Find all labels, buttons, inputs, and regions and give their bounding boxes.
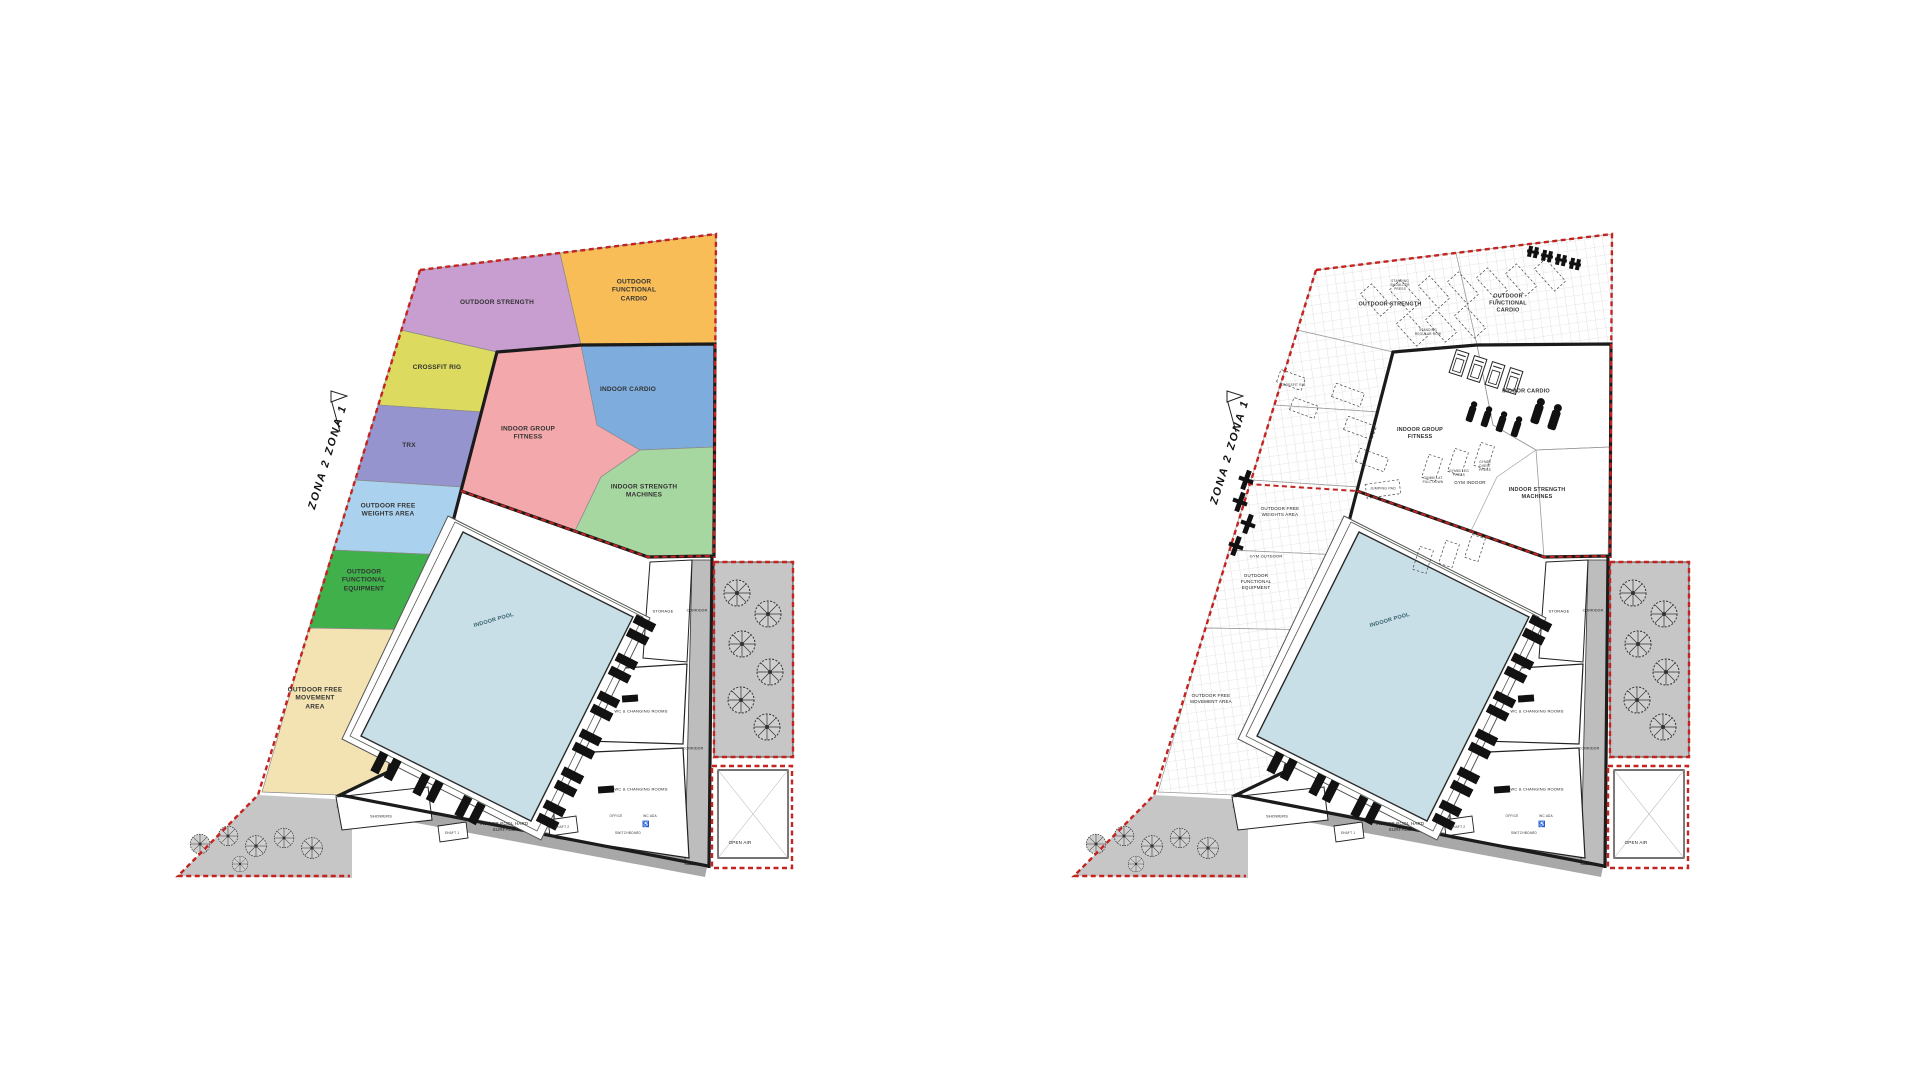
label-gym-outdoor: GYM OUTDOOR bbox=[1244, 553, 1288, 558]
room-label-corridor-lower-right: CORRIDOR bbox=[1574, 747, 1604, 752]
room-label-office-right: OFFICE bbox=[1500, 814, 1524, 818]
room-label-open-air: OPEN AIR bbox=[720, 840, 760, 846]
zone-label-indoor-cardio-right: INDOOR CARDIO bbox=[1491, 388, 1561, 395]
zoning-plan-left bbox=[178, 234, 793, 878]
zone-label-indoor-group-fitness: INDOOR GROUP FITNESS bbox=[497, 426, 559, 443]
equipment-tag: STANDING REGULAR ROW bbox=[1414, 328, 1442, 336]
room-label-storage: STORAGE bbox=[643, 608, 683, 613]
room-label-pool-hard-surface-right: INDOOR POOL HARD SURFACE bbox=[1370, 821, 1430, 833]
room-label-wc-changing-2-right: WC & CHANGING ROOMS bbox=[1508, 786, 1566, 791]
indoor-rooms-white bbox=[1357, 344, 1612, 557]
zone-label-indoor-group-fitness-right: INDOOR GROUP FITNESS bbox=[1389, 427, 1451, 441]
label-jumping-pad: JUMPING PAD bbox=[1365, 487, 1401, 492]
zone-label-trx: TRX bbox=[389, 442, 429, 450]
equipment-tag: GYM80 LEG PRESS bbox=[1448, 469, 1470, 477]
room-label-shaft-1: SHAFT 1 bbox=[440, 831, 464, 835]
zone-label-outdoor-functional-equipment: OUTDOOR FUNCTIONAL EQUIPMENT bbox=[335, 568, 393, 593]
room-label-corridor-lower: CORRIDOR bbox=[678, 747, 708, 752]
room-label-wc-ada-right: WC ADA bbox=[1534, 814, 1558, 818]
zone-label-indoor-strength-machines: INDOOR STRENGTH MACHINES bbox=[608, 484, 680, 501]
room-label-wc-changing-2: WC & CHANGING ROOMS bbox=[612, 786, 670, 791]
room-label-shaft-1-right: SHAFT 1 bbox=[1336, 831, 1360, 835]
zone-label-outdoor-strength: OUTDOOR STRENGTH bbox=[457, 299, 537, 307]
room-label-corridor-upper-right: CORRIDOR bbox=[1578, 609, 1608, 614]
label-gym-indoor: GYM INDOOR bbox=[1448, 480, 1492, 486]
zone-label-outdoor-functional-cardio: OUTDOOR FUNCTIONAL CARDIO bbox=[607, 278, 662, 303]
room-label-pool-hard-surface: INDOOR POOL HARD SURFACE bbox=[474, 821, 534, 833]
zone-label-crossfit-rig: CROSSFIT RIG bbox=[407, 364, 467, 372]
room-label-office: OFFICE bbox=[604, 814, 628, 818]
equipment-tag: GYM80 CHEST PRESS bbox=[1474, 460, 1496, 472]
label-crossfit-rig-tag: CROSSFIT RIG bbox=[1278, 383, 1308, 387]
zone-label-outdoor-functional-cardio-right: OUTDOOR FUNCTIONAL CARDIO bbox=[1483, 293, 1533, 314]
zone-label-indoor-strength-machines-right: INDOOR STRENGTH MACHINES bbox=[1501, 487, 1573, 501]
zone-label-outdoor-free-movement: OUTDOOR FREE MOVEMENT AREA bbox=[286, 686, 344, 711]
site-plan-canvas: OUTDOOR STRENGTH OUTDOOR FUNCTIONAL CARD… bbox=[0, 0, 1920, 1080]
plans-drawing bbox=[0, 0, 1920, 1080]
wheelchair-icon: ♿ bbox=[642, 822, 650, 830]
zone-label-outdoor-free-movement-right: OUTDOOR FREE MOVEMENT AREA bbox=[1184, 693, 1239, 705]
room-label-wc-changing-1-right: WC & CHANGING ROOMS bbox=[1508, 708, 1566, 713]
room-label-wc-ada: WC ADA bbox=[638, 814, 662, 818]
room-label-switchboard-right: SWITCHBOARD bbox=[1506, 831, 1542, 835]
wheelchair-icon-right: ♿ bbox=[1538, 822, 1546, 830]
room-label-showers-right: SHOWERS bbox=[1260, 813, 1294, 818]
room-label-corridor-upper: CORRIDOR bbox=[682, 609, 712, 614]
zone-label-outdoor-free-weights: OUTDOOR FREE WEIGHTS AREA bbox=[359, 503, 417, 520]
room-label-switchboard: SWITCHBOARD bbox=[610, 831, 646, 835]
room-label-showers: SHOWERS bbox=[364, 813, 398, 818]
zone-label-outdoor-strength-right: OUTDOOR STRENGTH bbox=[1350, 301, 1430, 308]
equipment-tag: GYM80 LAT PULL DOWN bbox=[1421, 476, 1445, 484]
room-label-open-air-right: OPEN AIR bbox=[1616, 840, 1656, 846]
room-label-wc-changing-1: WC & CHANGING ROOMS bbox=[612, 708, 670, 713]
equipment-tag: STANDING SHOULDER PRESS bbox=[1386, 279, 1414, 291]
equipment-plan-right bbox=[1074, 234, 1689, 878]
room-label-shaft-2-right: SHAFT 2 bbox=[1446, 825, 1470, 829]
zone-label-indoor-cardio: INDOOR CARDIO bbox=[593, 386, 663, 394]
zone-label-outdoor-functional-equipment-right: OUTDOOR FUNCTIONAL EQUIPMENT bbox=[1230, 573, 1282, 591]
zone-label-outdoor-free-weights-right: OUTDOOR FREE WEIGHTS AREA bbox=[1254, 506, 1306, 518]
room-label-storage-right: STORAGE bbox=[1539, 608, 1579, 613]
room-label-shaft-2: SHAFT 2 bbox=[550, 825, 574, 829]
